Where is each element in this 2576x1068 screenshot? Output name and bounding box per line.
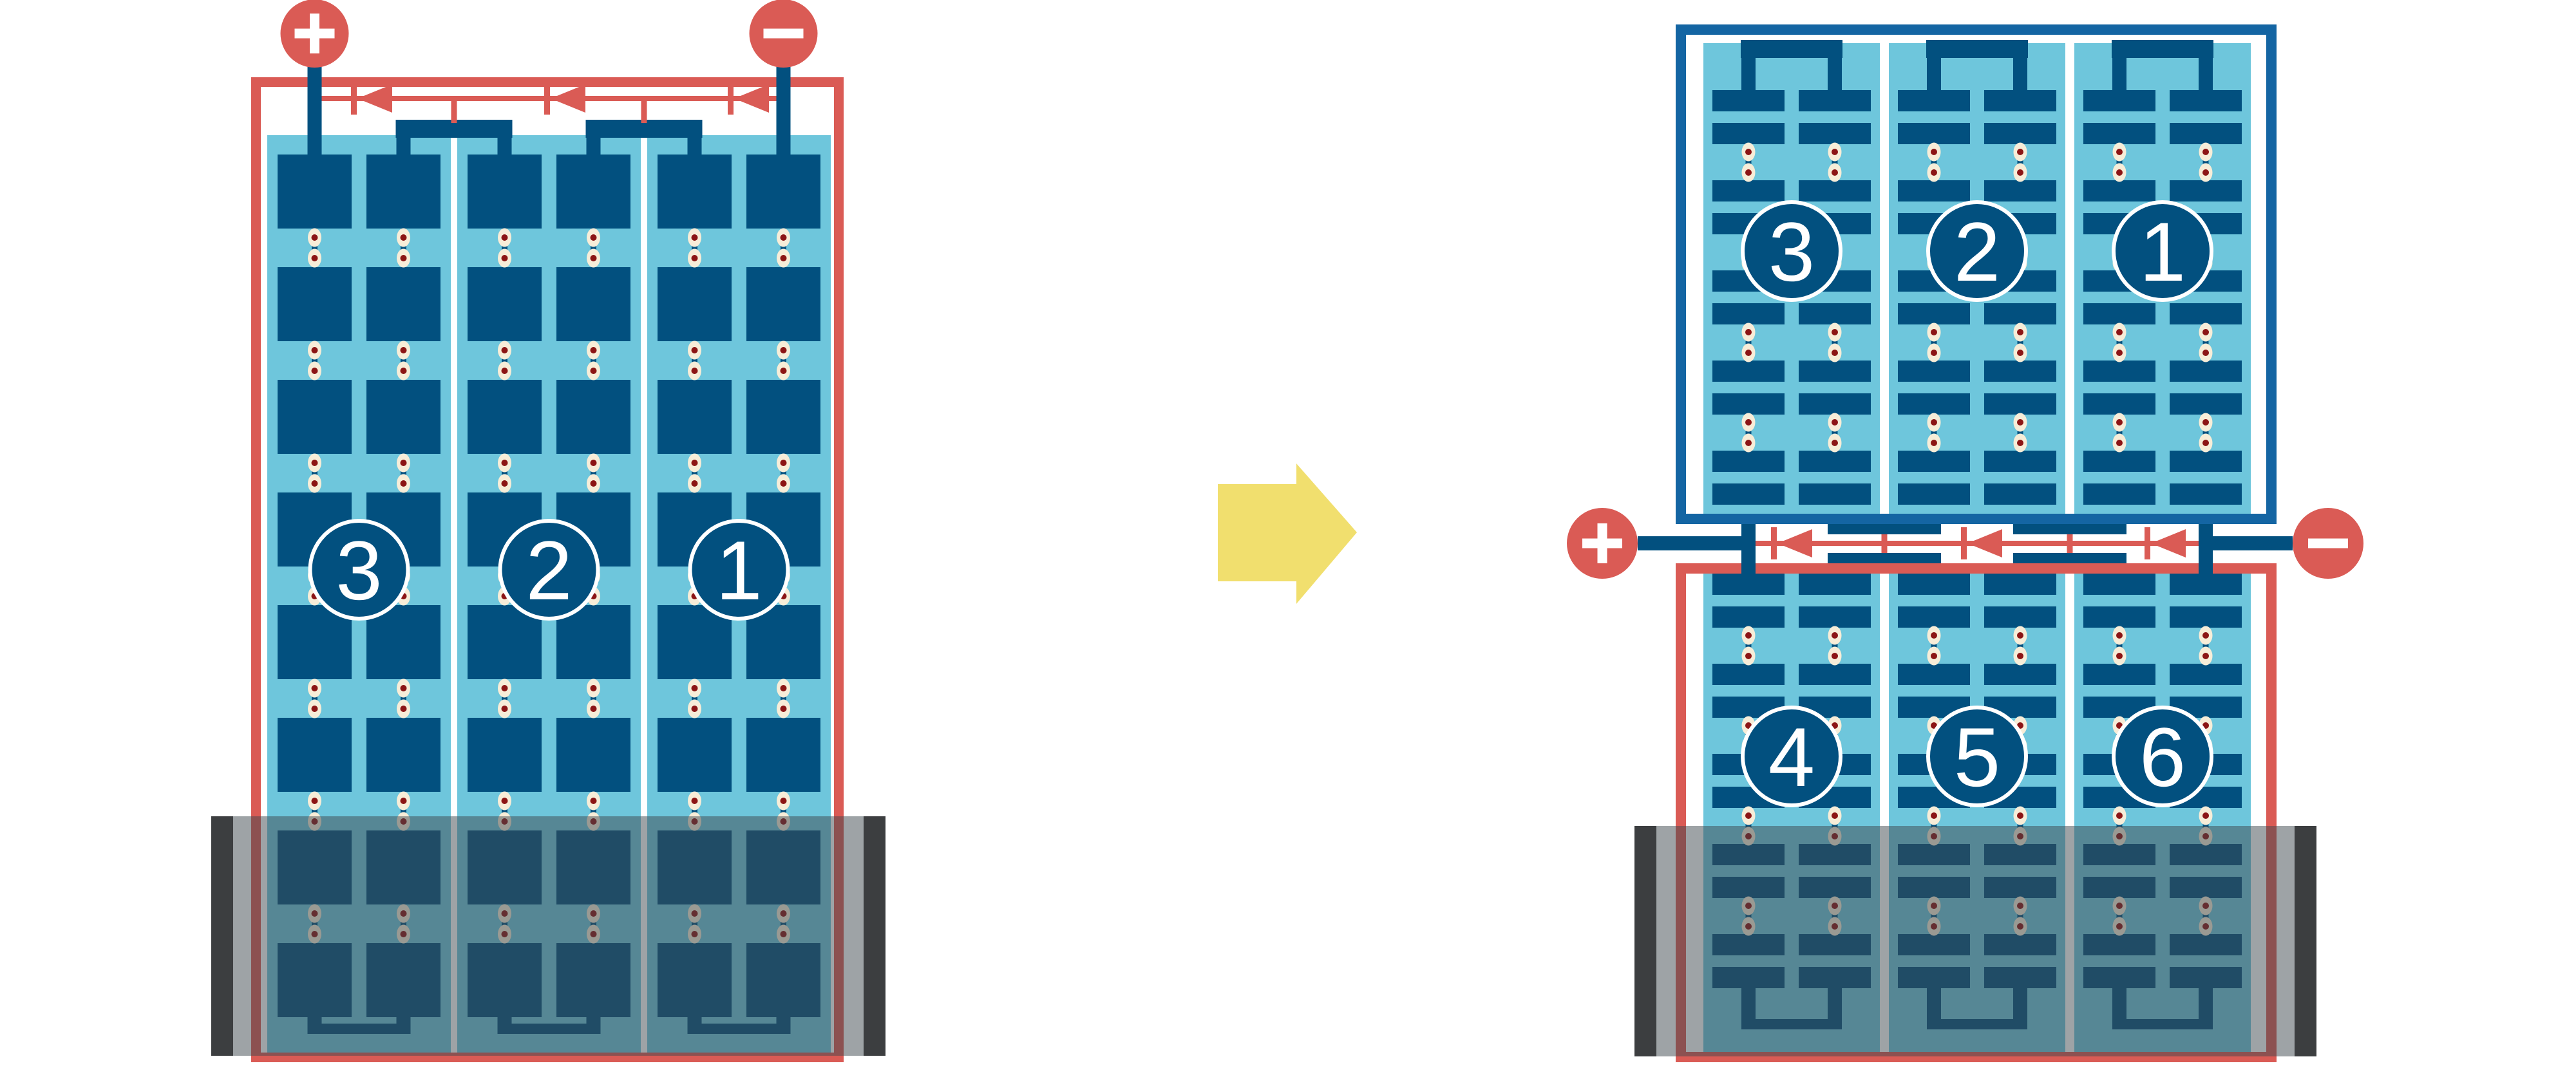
string-number-label: 3 [1768, 205, 1815, 299]
solar-cell [1898, 606, 1970, 628]
solar-cell [1712, 90, 1785, 111]
joint-dot [2116, 329, 2123, 335]
joint-dot [2202, 653, 2209, 659]
joint-dot [401, 706, 407, 712]
solar-cell [2170, 393, 2242, 415]
joint-dot [1832, 350, 1838, 356]
joint-dot [1832, 440, 1838, 446]
shade-region [211, 816, 885, 1056]
solar-cell [2170, 303, 2242, 324]
solar-cell [2083, 393, 2155, 415]
solar-cell [1898, 361, 1970, 382]
solar-cell [1984, 483, 2056, 505]
diode-cathode-bar [1771, 527, 1777, 559]
solar-cell [2170, 483, 2242, 505]
joint-dot [692, 368, 698, 374]
joint-dot [2202, 419, 2209, 426]
solar-cell [1712, 393, 1785, 415]
joint-dot [2202, 329, 2209, 335]
junction-tab-lower [1828, 553, 1941, 563]
string-number-label: 6 [2139, 710, 2186, 804]
joint-dot [502, 347, 508, 353]
joint-dot [2116, 350, 2123, 356]
shade-end-bar [1634, 826, 1656, 1056]
joint-dot [1931, 169, 1937, 176]
joint-dot [502, 368, 508, 374]
joint-dot [692, 460, 698, 466]
negative-terminal [750, 0, 818, 68]
joint-dot [1931, 812, 1937, 819]
solar-cell [1712, 180, 1785, 201]
solar-cell [658, 380, 732, 454]
string-number-badge: 2 [1928, 202, 2026, 300]
solar-cell [2170, 123, 2242, 144]
jumper-leg [498, 138, 512, 158]
solar-cell [366, 267, 440, 341]
solar-cell [1799, 303, 1871, 324]
joint-dot [781, 685, 787, 691]
solar-cell [2170, 361, 2242, 382]
joint-dot [1745, 169, 1752, 176]
solar-cell [366, 155, 440, 229]
joint-dot [401, 368, 407, 374]
string-number-label: 1 [715, 523, 762, 617]
joint-dot [1745, 419, 1752, 426]
joint-dot [502, 234, 508, 241]
joint-dot [2017, 149, 2023, 155]
solar-cell [1984, 451, 2056, 472]
solar-module-shading-diagram: 321342516 [0, 0, 2576, 1068]
string-number-badge: 3 [1743, 202, 1841, 300]
joint-dot [401, 798, 407, 804]
solar-cell [1898, 664, 1970, 685]
shade-region [1634, 826, 2316, 1056]
positive-lead-wire [1638, 536, 1741, 550]
solar-cell [658, 155, 732, 229]
solar-cell [1712, 123, 1785, 144]
junction-stem [1741, 524, 1756, 574]
solar-cell [1712, 303, 1785, 324]
string-number-badge: 1 [2114, 202, 2211, 300]
jumper-bar [1741, 40, 1842, 58]
solar-cell [2170, 606, 2242, 628]
joint-dot [1832, 632, 1838, 639]
solar-cell [2083, 361, 2155, 382]
solar-cell [746, 380, 820, 454]
solar-cell [1898, 90, 1970, 111]
joint-dot [502, 460, 508, 466]
joint-dot [1745, 329, 1752, 335]
string-number-badge: 6 [2114, 707, 2211, 805]
string-number-badge: 4 [1743, 707, 1841, 805]
joint-dot [2116, 149, 2123, 155]
joint-dot [692, 480, 698, 487]
joint-dot [2116, 169, 2123, 176]
jumper-leg [688, 138, 702, 158]
string-number-label: 4 [1768, 710, 1815, 804]
joint-dot [591, 255, 597, 261]
negative-lead-wire [2213, 536, 2293, 550]
solar-cell [1712, 361, 1785, 382]
joint-dot [781, 480, 787, 487]
joint-dot [2017, 812, 2023, 819]
joint-dot [312, 347, 318, 353]
string-number-label: 2 [1954, 205, 2000, 299]
joint-dot [312, 685, 318, 691]
left-shade-overlay [211, 816, 885, 1056]
joint-dot [781, 798, 787, 804]
joint-dot [2116, 419, 2123, 426]
solar-cell [1898, 483, 1970, 505]
string-number-badge: 3 [310, 521, 408, 619]
joint-dot [2116, 632, 2123, 639]
solar-cell [2083, 574, 2155, 595]
joint-dot [781, 347, 787, 353]
solar-cell [2083, 451, 2155, 472]
solar-cell [468, 380, 542, 454]
solar-cell [1799, 451, 1871, 472]
minus-icon [764, 29, 804, 39]
solar-cell [1799, 180, 1871, 201]
joint-dot [1931, 440, 1937, 446]
joint-dot [2202, 632, 2209, 639]
joint-dot [312, 460, 318, 466]
joint-dot [1931, 419, 1937, 426]
joint-dot [312, 234, 318, 241]
joint-dot [2017, 350, 2023, 356]
solar-cell [1712, 606, 1785, 628]
string-number-label: 2 [526, 523, 572, 617]
joint-dot [1745, 812, 1752, 819]
solar-cell [278, 267, 352, 341]
joint-dot [1931, 329, 1937, 335]
joint-dot [591, 460, 597, 466]
solar-cell [1712, 483, 1785, 505]
solar-cell [1712, 451, 1785, 472]
solar-cell [1799, 606, 1871, 628]
solar-cell [1898, 574, 1970, 595]
solar-cell [1984, 361, 2056, 382]
solar-cell [1898, 393, 1970, 415]
solar-cell [1799, 90, 1871, 111]
jumper-bar [1926, 40, 2028, 58]
joint-dot [2116, 440, 2123, 446]
solar-cell [1712, 574, 1785, 595]
solar-cell [556, 155, 630, 229]
solar-cell [1712, 664, 1785, 685]
joint-dot [781, 255, 787, 261]
string-number-badge: 5 [1928, 707, 2026, 805]
joint-dot [502, 798, 508, 804]
solar-cell [1799, 123, 1871, 144]
solar-cell [2083, 123, 2155, 144]
joint-dot [1745, 440, 1752, 446]
transition-arrow-icon [1218, 464, 1357, 604]
solar-cell [2083, 483, 2155, 505]
joint-dot [692, 685, 698, 691]
joint-dot [692, 706, 698, 712]
joint-dot [1931, 350, 1937, 356]
solar-cell [2083, 606, 2155, 628]
solar-cell [366, 718, 440, 792]
solar-cell [556, 380, 630, 454]
joint-dot [502, 685, 508, 691]
solar-cell [2170, 451, 2242, 472]
junction-tab-lower [2013, 553, 2126, 563]
solar-cell [1799, 361, 1871, 382]
joint-dot [2017, 653, 2023, 659]
glyph-bar-h [764, 29, 804, 39]
joint-dot [591, 368, 597, 374]
negative-terminal [2293, 508, 2363, 579]
solar-cell [2170, 180, 2242, 201]
diode-cathode-bar [351, 82, 357, 115]
joint-dot [312, 368, 318, 374]
solar-cell [1984, 393, 2056, 415]
joint-dot [1745, 653, 1752, 659]
joint-dot [2017, 440, 2023, 446]
solar-cell [1984, 303, 2056, 324]
diode-arrow [1967, 529, 2002, 557]
joint-dot [312, 480, 318, 487]
joint-dot [591, 706, 597, 712]
solar-cell [1984, 664, 2056, 685]
solar-cell [1984, 90, 2056, 111]
diode-cathode-bar [2145, 527, 2150, 559]
joint-dot [401, 255, 407, 261]
joint-dot [2017, 419, 2023, 426]
joint-dot [591, 480, 597, 487]
right-shade-overlay [1634, 826, 2316, 1056]
joint-dot [781, 460, 787, 466]
joint-dot [401, 234, 407, 241]
solar-cell [1898, 123, 1970, 144]
diode-cathode-bar [544, 82, 550, 115]
solar-cell [658, 267, 732, 341]
solar-cell [2170, 90, 2242, 111]
solar-cell [2083, 90, 2155, 111]
shade-end-bar [2295, 826, 2316, 1056]
string-number-label: 3 [336, 523, 382, 617]
junction-tab-upper [2013, 524, 2126, 534]
joint-dot [591, 798, 597, 804]
string-number-badge: 2 [500, 521, 598, 619]
solar-cell [2083, 180, 2155, 201]
solar-cell [1984, 180, 2056, 201]
joint-dot [1931, 632, 1937, 639]
joint-dot [591, 234, 597, 241]
diode-cathode-bar [1961, 527, 1967, 559]
joint-dot [1832, 329, 1838, 335]
joint-dot [781, 706, 787, 712]
joint-dot [781, 368, 787, 374]
solar-cell [1984, 574, 2056, 595]
joint-dot [591, 685, 597, 691]
solar-cell [1799, 574, 1871, 595]
diagram-canvas: 321342516 [0, 0, 2576, 1068]
positive-lead-wire [308, 64, 322, 193]
joint-dot [312, 798, 318, 804]
joint-dot [502, 480, 508, 487]
joint-dot [692, 798, 698, 804]
joint-dot [1745, 350, 1752, 356]
solar-cell [746, 718, 820, 792]
solar-cell [556, 718, 630, 792]
joint-dot [2116, 653, 2123, 659]
shade-end-bar [211, 816, 233, 1056]
solar-cell [1898, 451, 1970, 472]
solar-cell [2083, 303, 2155, 324]
string-number-badge: 1 [690, 521, 788, 619]
joint-dot [692, 234, 698, 241]
joint-dot [1745, 632, 1752, 639]
solar-cell [2170, 664, 2242, 685]
joint-dot [1832, 149, 1838, 155]
joint-dot [502, 255, 508, 261]
joint-dot [1745, 149, 1752, 155]
joint-dot [591, 347, 597, 353]
joint-dot [2017, 329, 2023, 335]
joint-dot [2116, 812, 2123, 819]
joint-dot [1832, 812, 1838, 819]
string-number-label: 1 [2139, 205, 2186, 299]
solar-cell [746, 267, 820, 341]
joint-dot [1832, 653, 1838, 659]
junction-tab-upper [1828, 524, 1941, 534]
bus-tap-stub [451, 98, 457, 123]
string-number-label: 5 [1954, 710, 2000, 804]
negative-lead-wire [777, 64, 791, 193]
solar-cell [1984, 606, 2056, 628]
jumper-bar [2112, 40, 2213, 58]
glyph-bar-v [310, 14, 319, 53]
positive-terminal [281, 0, 349, 68]
jumper-leg [587, 138, 601, 158]
joint-dot [692, 255, 698, 261]
solar-cell [468, 155, 542, 229]
joint-dot [2202, 440, 2209, 446]
joint-dot [2202, 169, 2209, 176]
solar-cell [1898, 180, 1970, 201]
solar-cell [468, 718, 542, 792]
solar-cell [366, 380, 440, 454]
diode-arrow [1777, 529, 1812, 557]
solar-cell [658, 718, 732, 792]
joint-dot [2017, 169, 2023, 176]
solar-cell [278, 718, 352, 792]
diode-cathode-bar [728, 82, 734, 115]
solar-cell [1799, 483, 1871, 505]
solar-cell [468, 267, 542, 341]
solar-cell [1984, 123, 2056, 144]
shade-end-bar [864, 816, 885, 1056]
solar-cell [1898, 303, 1970, 324]
glyph-bar-h [2308, 539, 2348, 548]
joint-dot [781, 234, 787, 241]
bus-tap-stub [641, 98, 647, 123]
joint-dot [312, 706, 318, 712]
joint-dot [692, 347, 698, 353]
diode-arrow [2151, 529, 2186, 557]
joint-dot [2202, 350, 2209, 356]
joint-dot [502, 706, 508, 712]
minus-icon [2308, 539, 2348, 548]
solar-cell [278, 380, 352, 454]
solar-cell [1799, 664, 1871, 685]
joint-dot [401, 460, 407, 466]
joint-dot [1931, 653, 1937, 659]
solar-cell [2083, 664, 2155, 685]
joint-dot [401, 480, 407, 487]
solar-cell [1799, 393, 1871, 415]
joint-dot [1832, 169, 1838, 176]
glyph-bar-v [1598, 523, 1607, 563]
joint-dot [2017, 632, 2023, 639]
solar-cell [556, 267, 630, 341]
joint-dot [312, 255, 318, 261]
joint-dot [1832, 419, 1838, 426]
joint-dot [401, 685, 407, 691]
jumper-leg [397, 138, 411, 158]
joint-dot [1931, 149, 1937, 155]
junction-stem [2199, 524, 2213, 574]
positive-terminal [1567, 508, 1638, 579]
joint-dot [2202, 149, 2209, 155]
joint-dot [2202, 812, 2209, 819]
solar-cell [2170, 574, 2242, 595]
joint-dot [401, 347, 407, 353]
